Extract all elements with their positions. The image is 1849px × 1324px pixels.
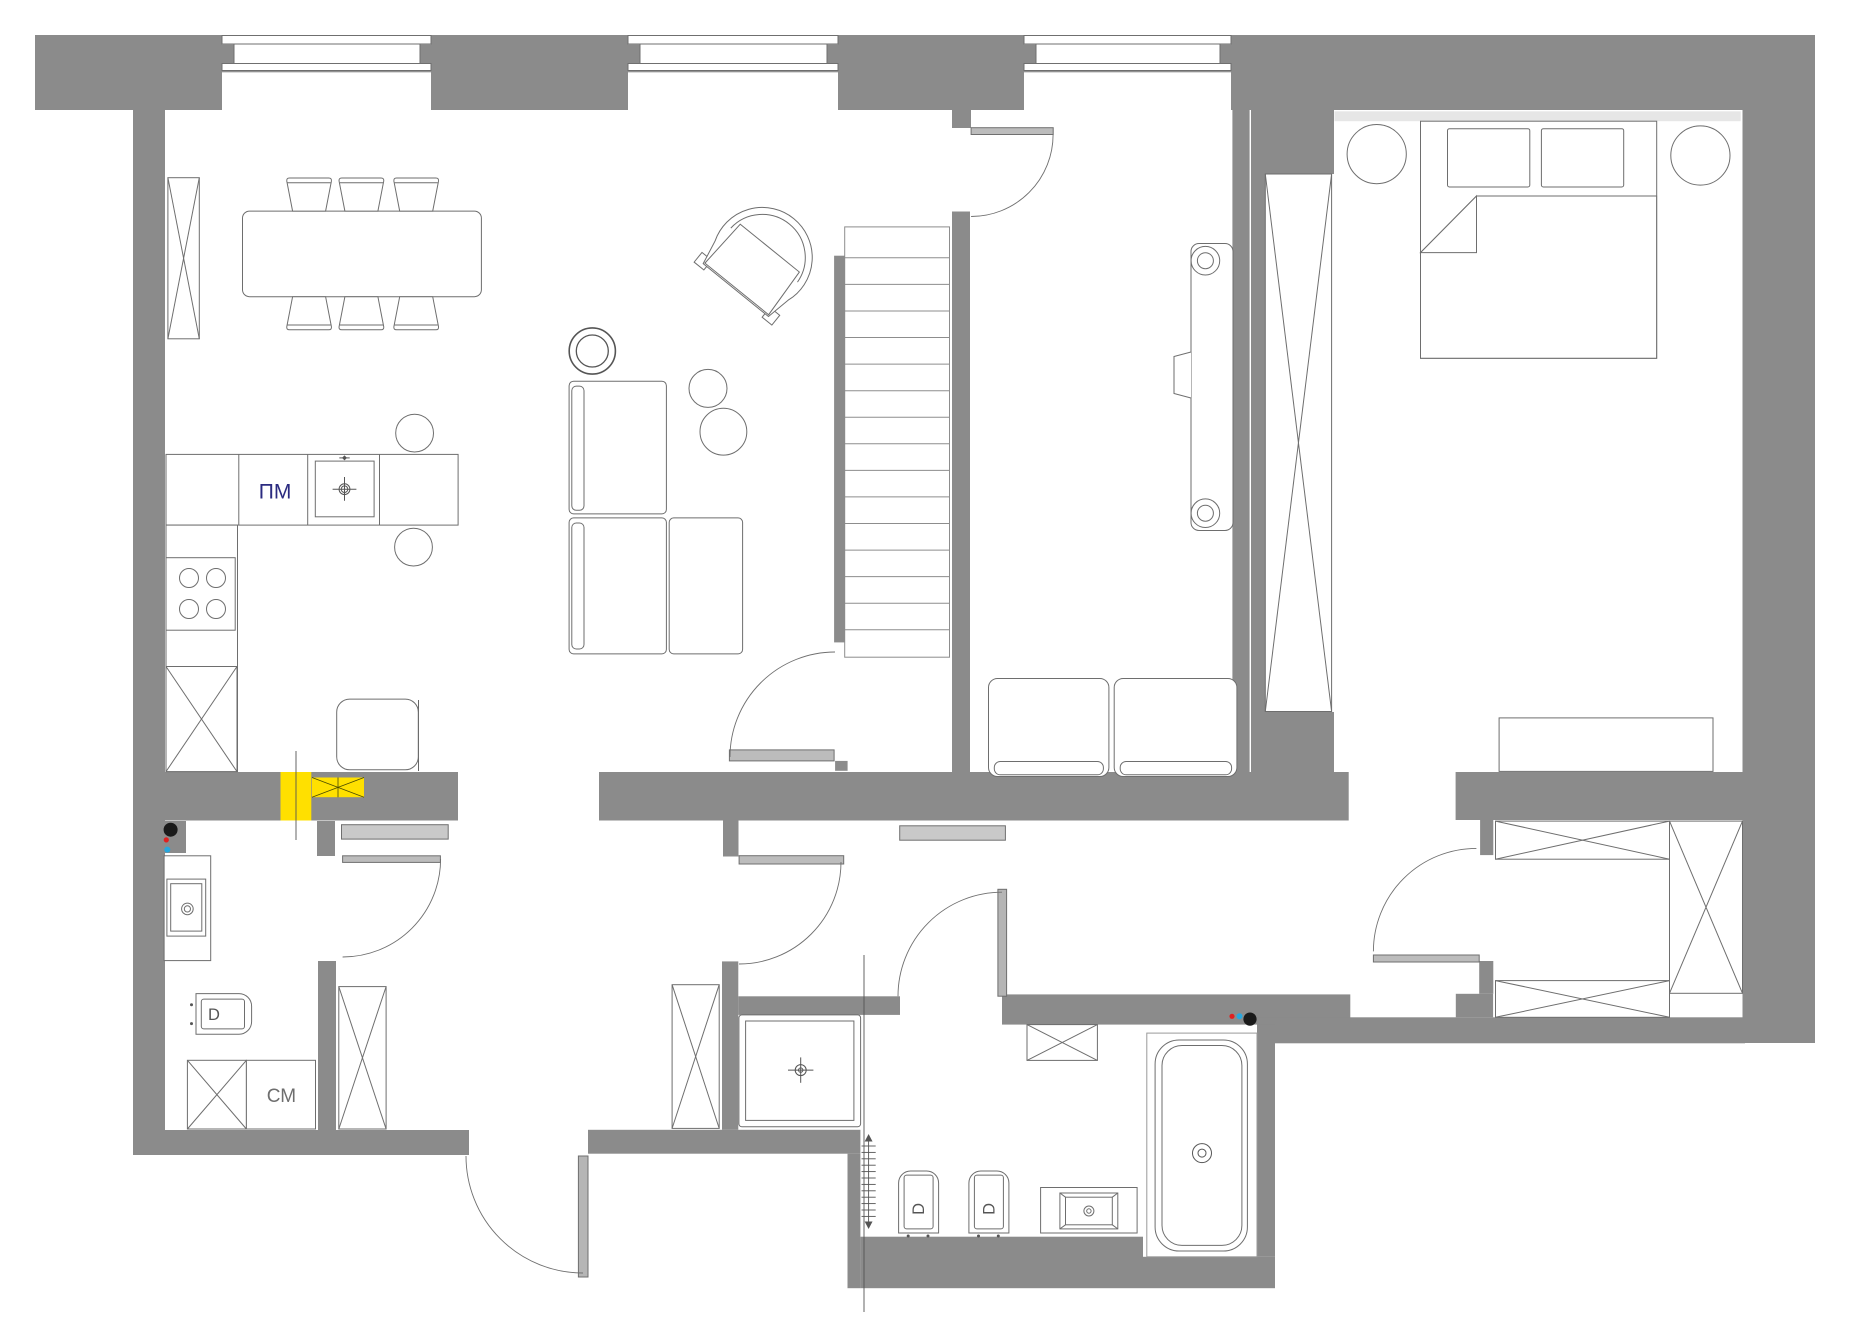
svg-text:ПМ: ПМ [259, 481, 292, 504]
svg-text:D: D [980, 1203, 998, 1215]
svg-text:D: D [208, 1006, 220, 1024]
svg-text:СМ: СМ [267, 1086, 296, 1107]
svg-text:D: D [910, 1203, 928, 1215]
